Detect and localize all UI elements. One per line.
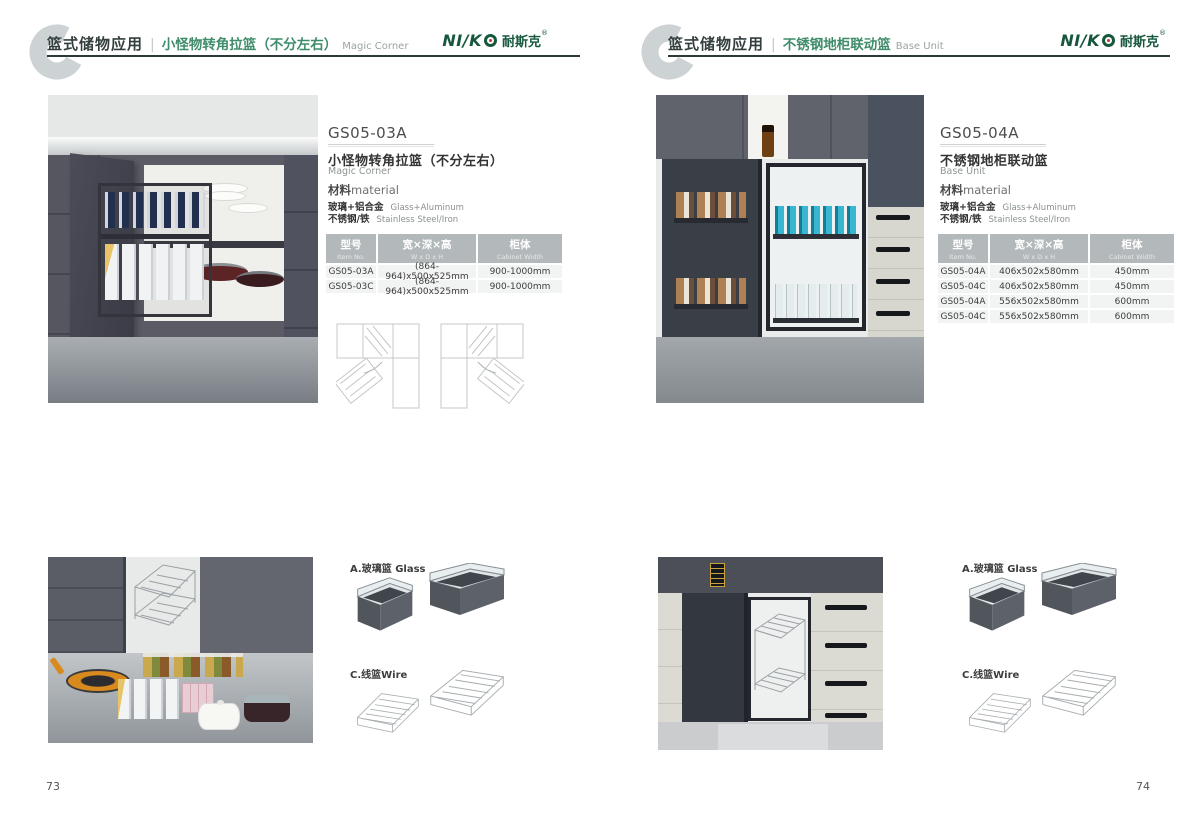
photo-floor xyxy=(658,722,883,750)
wire-basket-small xyxy=(352,682,422,742)
cell-item-no: GS05-03A xyxy=(326,265,376,278)
photo-left-wall xyxy=(48,557,126,657)
spec-header-row: 型号 Item No. 宽×深×高 W x D x H 柜体 Cabinet W… xyxy=(326,234,562,263)
clear-bottle-row xyxy=(775,284,857,318)
material-en: Stainless Steel/Iron xyxy=(377,215,459,225)
col-header-cn: 宽×深×高 xyxy=(990,237,1088,252)
spec-header-row: 型号 Item No. 宽×深×高 W x D x H 柜体 Cabinet W… xyxy=(938,234,1174,263)
cell-dimensions: 406x502x580mm xyxy=(990,280,1088,293)
corner-diagram-left xyxy=(336,320,420,412)
catalog-page-right: 篮式储物应用 | 不锈钢地柜联动篮 Base Unit NI/K 耐斯克 ® xyxy=(612,0,1200,820)
cell-dimensions: (864-964)x500x525mm xyxy=(378,280,476,293)
gold-label xyxy=(710,563,725,587)
spec-table: 型号 Item No. 宽×深×高 W x D x H 柜体 Cabinet W… xyxy=(326,234,562,295)
spec-row: GS05-04C 406x502x580mm 450mm xyxy=(938,280,1174,293)
logo-red-dot-icon xyxy=(489,39,492,42)
col-header-en: W x D x H xyxy=(990,253,1088,261)
header-title-cn: 不锈钢地柜联动篮 xyxy=(783,33,891,53)
material-heading-en: material xyxy=(963,183,1011,197)
col-header-cabinet: 柜体 Cabinet Width xyxy=(478,234,562,263)
col-header-en: Item No. xyxy=(326,253,376,261)
catalog-spread: 篮式储物应用 | 小怪物转角拉篮（不分左右） Magic Corner NI/K… xyxy=(0,0,1200,820)
dark-pot xyxy=(244,695,290,722)
photo-top-band xyxy=(658,557,883,593)
registered-mark: ® xyxy=(1159,29,1166,37)
blue-bottle-row xyxy=(775,206,857,234)
cell-cabinet: 450mm xyxy=(1090,280,1174,293)
material-heading-cn: 材料 xyxy=(940,183,963,197)
col-header-cn: 型号 xyxy=(938,237,988,252)
drawer-handle xyxy=(825,605,867,610)
bottle-row xyxy=(105,192,205,228)
catalog-page-left: 篮式储物应用 | 小怪物转角拉篮（不分左右） Magic Corner NI/K… xyxy=(0,0,600,820)
product-name-en: Magic Corner xyxy=(328,166,568,177)
brand-logo: NI/K 耐斯克 ® xyxy=(442,31,548,50)
wire-basket-icon xyxy=(129,557,200,653)
header-title-en: Base Unit xyxy=(896,41,944,52)
spec-row: GS05-04C 556x502x580mm 600mm xyxy=(938,310,1174,323)
cell-dimensions: 556x502x580mm xyxy=(990,310,1088,323)
photo-cabinet-interior xyxy=(748,597,811,721)
photo-floor xyxy=(656,337,924,403)
door-rack xyxy=(674,269,748,309)
drawer-handle xyxy=(876,279,910,284)
material-heading: 材料material xyxy=(328,182,568,198)
material-heading-en: material xyxy=(351,183,399,197)
box-row xyxy=(676,278,746,304)
door-rack xyxy=(674,183,748,223)
logo-text: NI/K xyxy=(1060,31,1100,50)
drawer-handle xyxy=(825,713,867,718)
wire-basket-large xyxy=(424,664,510,728)
spec-row: GS05-03C (864-964)x500x525mm 900-1000mm xyxy=(326,280,562,293)
cell-cabinet: 450mm xyxy=(1090,265,1174,278)
drawer-handle xyxy=(825,681,867,686)
cell-cabinet: 900-1000mm xyxy=(478,280,562,293)
header-title-cn: 小怪物转角拉篮（不分左右） xyxy=(162,33,338,53)
photo-floor xyxy=(48,337,318,403)
product-code: GS05-04A xyxy=(940,124,1180,142)
jar-row xyxy=(143,653,243,677)
page-number: 73 xyxy=(46,780,60,793)
header-category: 篮式储物应用 xyxy=(668,33,764,54)
material-row: 不锈钢/铁 Stainless Steel/Iron xyxy=(328,211,568,225)
variant-wire-label: C.线篮Wire xyxy=(962,666,1019,681)
lifestyle-photo xyxy=(658,557,883,750)
main-product-photo xyxy=(48,95,318,403)
spec-row: GS05-04A 406x502x580mm 450mm xyxy=(938,265,1174,278)
col-header-dimensions: 宽×深×高 W x D x H xyxy=(378,234,476,263)
col-header-item-no: 型号 Item No. xyxy=(326,234,376,263)
pot-knob xyxy=(217,700,224,705)
registered-mark: ® xyxy=(541,29,548,37)
photo-right-wall xyxy=(200,557,313,657)
col-header-en: Item No. xyxy=(938,253,988,261)
cell-item-no: GS05-03C xyxy=(326,280,376,293)
col-header-en: Cabinet Width xyxy=(478,253,562,261)
col-header-cabinet: 柜体 Cabinet Width xyxy=(1090,234,1174,263)
photo-right-drawers xyxy=(284,155,318,337)
basket-shelf xyxy=(101,234,209,239)
logo-text: NI/K xyxy=(442,31,482,50)
page-header: 篮式储物应用 | 小怪物转角拉篮（不分左右） Magic Corner xyxy=(47,33,408,54)
photo-right-stone xyxy=(811,593,883,722)
photo-right-panel xyxy=(868,95,924,207)
glass-basket-large xyxy=(1036,563,1120,621)
drawer-handle xyxy=(876,247,910,252)
cell-cabinet: 900-1000mm xyxy=(478,265,562,278)
basket-tier-top xyxy=(773,175,859,239)
logo-cn-text: 耐斯克 xyxy=(502,31,541,50)
brand-logo: NI/K 耐斯克 ® xyxy=(1060,31,1166,50)
photo-open-door xyxy=(682,593,748,723)
col-header-cn: 型号 xyxy=(326,237,376,252)
material-cn: 不锈钢/铁 xyxy=(940,214,981,225)
logo-o-icon xyxy=(1102,34,1115,47)
logo-cn-text: 耐斯克 xyxy=(1120,31,1159,50)
pullout-basket xyxy=(98,183,212,317)
page-header: 篮式储物应用 | 不锈钢地柜联动篮 Base Unit xyxy=(668,33,944,54)
pullout-basket-unit xyxy=(766,163,866,331)
dish xyxy=(228,203,268,213)
cell-item-no: GS05-04A xyxy=(938,295,988,308)
white-pot xyxy=(198,703,240,730)
col-header-cn: 柜体 xyxy=(478,237,562,252)
photo-open-door xyxy=(662,159,762,337)
col-header-cn: 柜体 xyxy=(1090,237,1174,252)
variant-glass-label: A.玻璃篮 Glass xyxy=(350,560,426,575)
spec-table: 型号 Item No. 宽×深×高 W x D x H 柜体 Cabinet W… xyxy=(938,234,1174,325)
col-header-item-no: 型号 Item No. xyxy=(938,234,988,263)
col-header-en: W x D x H xyxy=(378,253,476,261)
basket-tier-bottom xyxy=(773,255,859,323)
logo-red-dot-icon xyxy=(1107,39,1110,42)
glass-basket-large xyxy=(424,563,508,621)
code-underline xyxy=(940,144,1046,147)
cell-item-no: GS05-04C xyxy=(938,280,988,293)
col-header-cn: 宽×深×高 xyxy=(378,237,476,252)
variant-glass-label: A.玻璃篮 Glass xyxy=(962,560,1038,575)
material-en: Stainless Steel/Iron xyxy=(989,215,1071,225)
lifestyle-photo xyxy=(48,557,313,743)
basket-shelf xyxy=(773,318,859,323)
whisky-bottle xyxy=(762,125,774,157)
logo-o-icon xyxy=(484,34,497,47)
cell-cabinet: 600mm xyxy=(1090,310,1174,323)
header-rule xyxy=(668,55,1170,57)
product-name-en: Base Unit xyxy=(940,166,1180,177)
photo-stone-drawers xyxy=(868,207,924,337)
material-heading-cn: 材料 xyxy=(328,183,351,197)
basket-shelf xyxy=(773,234,859,239)
col-header-dimensions: 宽×深×高 W x D x H xyxy=(990,234,1088,263)
header-divider: | xyxy=(150,37,155,53)
material-row: 不锈钢/铁 Stainless Steel/Iron xyxy=(940,211,1180,225)
photo-countertop xyxy=(48,137,318,155)
glass-basket-small xyxy=(964,577,1030,639)
wire-basket-icon xyxy=(751,600,808,718)
variant-wire-label: C.线篮Wire xyxy=(350,666,407,681)
wire-basket-small xyxy=(964,682,1034,742)
drawer-handle xyxy=(876,311,910,316)
corner-diagram-right xyxy=(440,320,524,412)
photo-wall xyxy=(48,95,318,139)
page-number: 74 xyxy=(1136,780,1150,793)
cell-cabinet: 600mm xyxy=(1090,295,1174,308)
cell-dimensions: 556x502x580mm xyxy=(990,295,1088,308)
carton-group xyxy=(118,679,180,719)
pan xyxy=(236,271,284,287)
col-header-en: Cabinet Width xyxy=(1090,253,1174,261)
cell-item-no: GS05-04C xyxy=(938,310,988,323)
box-row xyxy=(676,192,746,218)
main-product-photo xyxy=(656,95,924,403)
drawer-handle xyxy=(876,215,910,220)
material-heading: 材料material xyxy=(940,182,1180,198)
carton-row xyxy=(105,244,205,300)
photo-corner-interior xyxy=(129,557,200,653)
header-divider: | xyxy=(771,37,776,53)
code-underline xyxy=(328,144,434,147)
corner-diagrams xyxy=(336,320,524,412)
header-category: 篮式储物应用 xyxy=(47,33,143,54)
cell-item-no: GS05-04A xyxy=(938,265,988,278)
drawer-handle xyxy=(825,643,867,648)
glass-basket-small xyxy=(352,577,418,639)
header-title-en: Magic Corner xyxy=(342,41,408,52)
material-cn: 不锈钢/铁 xyxy=(328,214,369,225)
spec-row: GS05-04A 556x502x580mm 600mm xyxy=(938,295,1174,308)
header-rule xyxy=(47,55,580,57)
photo-display-niche xyxy=(748,95,788,159)
wire-basket-large xyxy=(1036,664,1122,728)
product-code: GS05-03A xyxy=(328,124,568,142)
floor-mat xyxy=(718,724,828,750)
cell-dimensions: 406x502x580mm xyxy=(990,265,1088,278)
